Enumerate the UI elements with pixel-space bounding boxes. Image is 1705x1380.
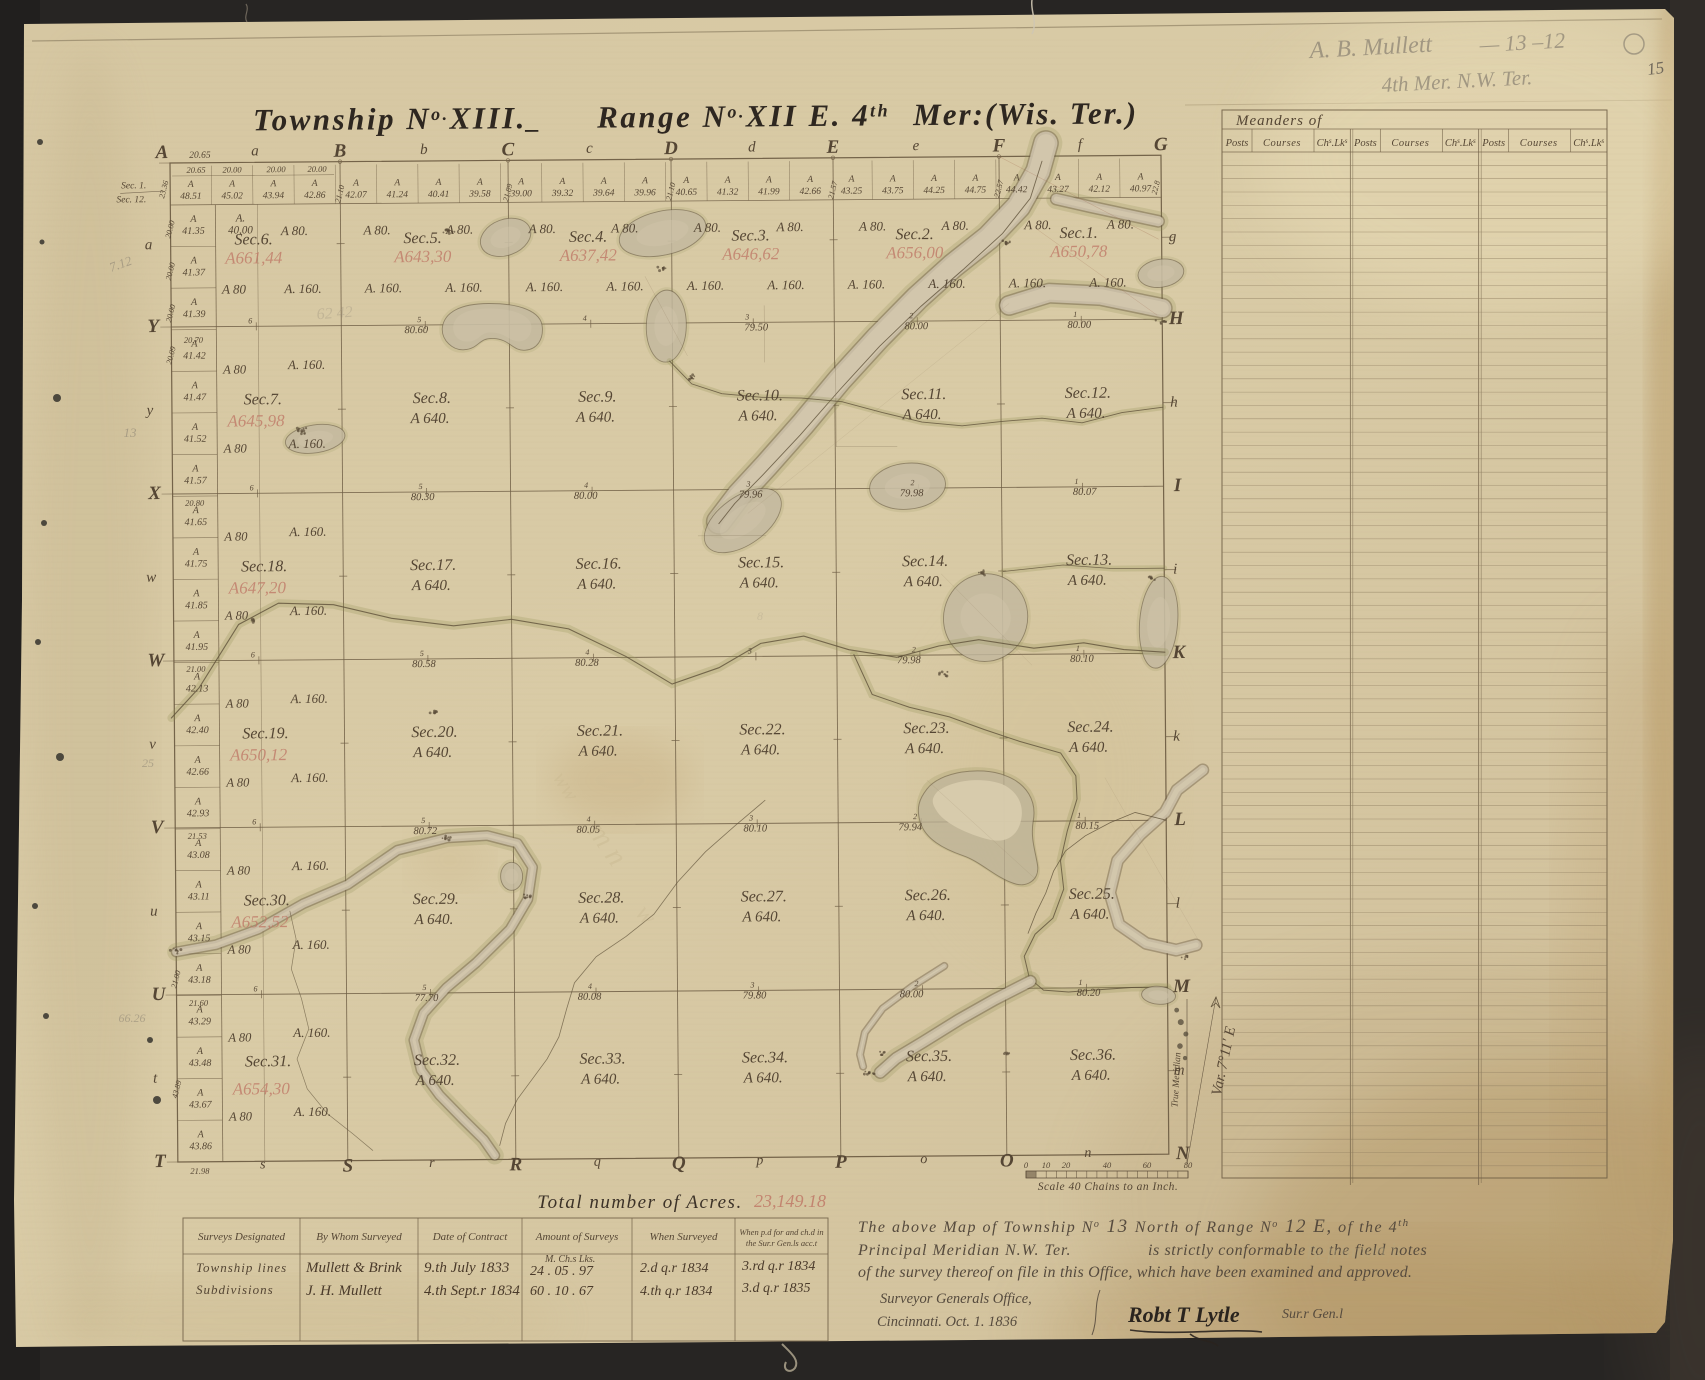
svg-text:41.65: 41.65 xyxy=(185,517,208,528)
svg-text:A650,78: A650,78 xyxy=(1049,242,1108,261)
svg-text:a: a xyxy=(251,143,259,159)
svg-text:Sec.19.: Sec.19. xyxy=(242,725,288,742)
svg-text:A: A xyxy=(196,1088,204,1099)
svg-text:43.75: 43.75 xyxy=(882,186,904,196)
svg-text:A: A xyxy=(641,176,648,186)
svg-text:M: M xyxy=(1172,976,1191,997)
svg-text:A 640.: A 640. xyxy=(907,1069,947,1085)
svg-text:43.18: 43.18 xyxy=(188,975,211,986)
svg-text:When Surveyed: When Surveyed xyxy=(649,1231,718,1243)
svg-text:Sec.20.: Sec.20. xyxy=(411,724,457,741)
svg-text:40.41: 40.41 xyxy=(428,190,449,200)
svg-text:k: k xyxy=(1173,729,1180,745)
svg-text:A: A xyxy=(682,176,689,186)
svg-text:A 640.: A 640. xyxy=(1071,1068,1111,1084)
svg-text:Robt T Lytle: Robt T Lytle xyxy=(1127,1302,1240,1327)
svg-text:41.42: 41.42 xyxy=(183,351,206,362)
svg-text:Chs.Lks: Chs.Lks xyxy=(1445,137,1476,149)
svg-text:Sec.7.: Sec.7. xyxy=(244,391,282,408)
svg-text:39.96: 39.96 xyxy=(633,188,656,198)
svg-text:Mer:(Wis. Ter.): Mer:(Wis. Ter.) xyxy=(912,95,1138,132)
svg-text:c: c xyxy=(586,141,593,157)
svg-text:h: h xyxy=(1170,395,1178,411)
svg-text:41.57: 41.57 xyxy=(184,475,208,486)
svg-text:A 640.: A 640. xyxy=(1069,907,1109,923)
svg-text:2: 2 xyxy=(912,645,916,654)
svg-text:79.98: 79.98 xyxy=(897,655,921,666)
svg-text:A. 160.: A. 160. xyxy=(291,937,329,952)
svg-text:y: y xyxy=(145,403,154,419)
svg-text:79.80: 79.80 xyxy=(743,990,767,1001)
svg-text:4.th q.r 1834: 4.th q.r 1834 xyxy=(640,1284,712,1299)
svg-text:80.58: 80.58 xyxy=(412,659,436,670)
svg-text:5: 5 xyxy=(422,983,426,992)
svg-text:20.65: 20.65 xyxy=(189,151,211,161)
svg-text:A: A xyxy=(197,1129,205,1140)
svg-text:6: 6 xyxy=(251,650,255,659)
svg-text:21.60: 21.60 xyxy=(189,998,209,1008)
svg-text:80.00: 80.00 xyxy=(900,989,924,1000)
svg-text:43.48: 43.48 xyxy=(189,1058,212,1069)
svg-text:E: E xyxy=(825,137,839,158)
svg-text:A. 160.: A. 160. xyxy=(927,276,965,291)
svg-text:A 640.: A 640. xyxy=(412,745,452,761)
svg-text:Surveyor Generals Office,: Surveyor Generals Office, xyxy=(880,1291,1032,1307)
svg-text:A 80.: A 80. xyxy=(1106,216,1134,231)
svg-text:A: A xyxy=(154,142,168,163)
svg-text:Sec.22.: Sec.22. xyxy=(739,721,785,738)
svg-text:J. H. Mullett: J. H. Mullett xyxy=(306,1283,383,1299)
svg-text:3: 3 xyxy=(744,312,749,321)
svg-text:a: a xyxy=(145,237,153,253)
svg-text:A: A xyxy=(191,422,199,433)
svg-text:A: A xyxy=(1054,173,1061,183)
svg-text:A652,52: A652,52 xyxy=(230,912,289,931)
svg-text:A646,62: A646,62 xyxy=(721,244,780,263)
svg-text:48.51: 48.51 xyxy=(180,192,201,202)
svg-text:Sec.25.: Sec.25. xyxy=(1069,886,1115,903)
svg-text:1: 1 xyxy=(1076,644,1080,653)
svg-text:A 80: A 80 xyxy=(225,696,250,710)
svg-text:A. 160.: A. 160. xyxy=(290,770,328,785)
svg-text:80.30: 80.30 xyxy=(411,492,435,503)
svg-text:Township No.XIII._: Township No.XIII._ xyxy=(253,100,542,137)
svg-text:S: S xyxy=(343,1156,354,1177)
svg-text:41.32: 41.32 xyxy=(717,188,739,198)
svg-text:A: A xyxy=(195,921,203,932)
svg-text:42.12: 42.12 xyxy=(1089,185,1111,195)
svg-text:20.80: 20.80 xyxy=(185,498,205,508)
svg-text:u: u xyxy=(150,904,158,920)
svg-text:41.47: 41.47 xyxy=(184,392,208,403)
svg-text:42.40: 42.40 xyxy=(186,725,209,736)
svg-text:Sec.35.: Sec.35. xyxy=(906,1048,952,1065)
svg-text:62 42: 62 42 xyxy=(316,304,353,323)
svg-text:20.70: 20.70 xyxy=(184,335,204,345)
svg-text:A: A xyxy=(765,175,772,185)
svg-text:79.94: 79.94 xyxy=(898,822,922,833)
svg-text:1: 1 xyxy=(1077,811,1081,820)
svg-text:2: 2 xyxy=(909,311,913,320)
svg-text:3: 3 xyxy=(748,813,753,822)
svg-text:1: 1 xyxy=(1074,477,1078,486)
svg-text:Sec.8.: Sec.8. xyxy=(413,390,451,407)
svg-text:80: 80 xyxy=(1184,1160,1193,1170)
svg-text:H: H xyxy=(1168,308,1185,329)
svg-text:3.rd q.r 1834: 3.rd q.r 1834 xyxy=(741,1259,815,1274)
svg-text:Courses: Courses xyxy=(1263,138,1301,149)
svg-text:Sec. 12.: Sec. 12. xyxy=(116,195,146,205)
svg-text:A 640.: A 640. xyxy=(905,908,945,924)
svg-text:Sec.31.: Sec.31. xyxy=(245,1053,291,1070)
svg-text:Sec.18.: Sec.18. xyxy=(241,558,287,575)
svg-text:80.07: 80.07 xyxy=(1073,487,1097,498)
svg-text:A 640.: A 640. xyxy=(576,577,616,593)
svg-text:A 640.: A 640. xyxy=(1068,740,1108,756)
svg-text:A 640.: A 640. xyxy=(904,741,944,757)
svg-text:40.65: 40.65 xyxy=(676,188,698,198)
svg-text:23,149.18: 23,149.18 xyxy=(754,1191,826,1211)
svg-text:25: 25 xyxy=(142,756,154,770)
svg-text:A. 160.: A. 160. xyxy=(283,281,321,296)
svg-text:e: e xyxy=(912,138,919,154)
svg-text:C: C xyxy=(501,139,514,160)
svg-text:Scale 40 Chains to an Inch.: Scale 40 Chains to an Inch. xyxy=(1038,1181,1179,1193)
svg-text:6: 6 xyxy=(248,316,252,325)
svg-text:1: 1 xyxy=(1073,310,1077,319)
svg-text:A. 160.: A. 160. xyxy=(290,691,328,706)
svg-text:42.93: 42.93 xyxy=(187,808,210,819)
svg-text:3.d q.r 1835: 3.d q.r 1835 xyxy=(741,1281,810,1296)
svg-text:The above Map of Township No 1: The above Map of Township No 13 North of… xyxy=(858,1216,1410,1237)
svg-text:A 640.: A 640. xyxy=(743,1070,783,1086)
svg-text:n: n xyxy=(1084,1146,1091,1161)
svg-text:A. 160.: A. 160. xyxy=(1088,274,1126,289)
svg-text:A 640.: A 640. xyxy=(740,742,780,758)
svg-text:1: 1 xyxy=(1078,978,1082,987)
svg-text:20.00: 20.00 xyxy=(307,164,327,174)
svg-text:A 80: A 80 xyxy=(227,1030,252,1044)
svg-text:A. 160.: A. 160. xyxy=(766,277,804,292)
svg-text:39.64: 39.64 xyxy=(592,189,615,199)
svg-text:A. 160.: A. 160. xyxy=(525,279,563,294)
svg-text:Chs.Lks: Chs.Lks xyxy=(1573,137,1604,149)
svg-text:66.26: 66.26 xyxy=(119,1011,146,1025)
svg-text:A650,12: A650,12 xyxy=(229,745,288,764)
svg-text:Sec.28.: Sec.28. xyxy=(578,889,624,906)
svg-text:A: A xyxy=(393,178,400,188)
svg-text:4.th Sept.r 1834: 4.th Sept.r 1834 xyxy=(424,1283,520,1299)
svg-text:w: w xyxy=(146,570,156,586)
svg-text:Sec.26.: Sec.26. xyxy=(905,887,951,904)
svg-text:Sec.24.: Sec.24. xyxy=(1067,719,1113,736)
svg-text:79.96: 79.96 xyxy=(739,489,763,500)
svg-text:A 80: A 80 xyxy=(227,942,252,956)
svg-text:By Whom Surveyed: By Whom Surveyed xyxy=(316,1231,402,1243)
svg-text:A: A xyxy=(476,178,483,188)
svg-text:Sec.16.: Sec.16. xyxy=(575,555,621,572)
svg-text:L: L xyxy=(1173,809,1186,830)
svg-text:A: A xyxy=(558,177,565,187)
svg-text:Sec.27.: Sec.27. xyxy=(741,888,787,905)
svg-text:X: X xyxy=(147,483,162,504)
svg-text:41.37: 41.37 xyxy=(183,267,207,278)
svg-text:Sec. 1.: Sec. 1. xyxy=(121,181,146,191)
svg-text:A 80: A 80 xyxy=(226,863,251,877)
svg-text:Sec.14.: Sec.14. xyxy=(902,553,948,570)
svg-text:A: A xyxy=(352,179,359,189)
svg-text:41.35: 41.35 xyxy=(182,226,205,237)
svg-text:24 . 05 . 97: 24 . 05 . 97 xyxy=(530,1264,594,1279)
svg-text:A 640.: A 640. xyxy=(413,912,453,928)
svg-text:10: 10 xyxy=(1042,1160,1051,1170)
svg-text:21.53: 21.53 xyxy=(188,831,207,841)
svg-text:Sec.6.: Sec.6. xyxy=(234,231,272,248)
svg-text:A. 160.: A. 160. xyxy=(444,280,482,295)
svg-text:U: U xyxy=(152,984,167,1005)
svg-text:80.60: 80.60 xyxy=(404,325,428,336)
svg-text:44.25: 44.25 xyxy=(923,186,945,196)
svg-text:41.24: 41.24 xyxy=(387,190,409,200)
svg-text:A: A xyxy=(435,178,442,188)
svg-text:41.99: 41.99 xyxy=(758,187,780,197)
svg-text:Sec.1.: Sec.1. xyxy=(1059,225,1097,242)
svg-text:of the survey thereof on file: of the survey thereof on file in this Of… xyxy=(858,1264,1412,1281)
svg-text:A 80.: A 80. xyxy=(693,220,721,235)
svg-text:A656,00: A656,00 xyxy=(885,243,944,262)
svg-text:A: A xyxy=(191,380,199,391)
svg-text:A. 160.: A. 160. xyxy=(289,603,327,618)
svg-text:42.86: 42.86 xyxy=(304,191,326,201)
svg-text:5: 5 xyxy=(420,649,424,658)
svg-text:80.10: 80.10 xyxy=(1070,654,1094,665)
svg-text:A: A xyxy=(930,174,937,184)
svg-text:43.11: 43.11 xyxy=(188,891,210,902)
svg-text:6: 6 xyxy=(253,984,257,993)
svg-text:Sec.15.: Sec.15. xyxy=(738,554,784,571)
svg-text:A643,30: A643,30 xyxy=(393,247,452,266)
svg-text:43.86: 43.86 xyxy=(189,1141,212,1152)
svg-text:Surveys Designated: Surveys Designated xyxy=(198,1231,286,1243)
svg-text:A 80: A 80 xyxy=(223,529,248,543)
svg-text:A 80.: A 80. xyxy=(280,223,308,238)
svg-text:40: 40 xyxy=(1103,1160,1112,1170)
svg-text:5: 5 xyxy=(419,482,423,491)
svg-text:39.58: 39.58 xyxy=(468,189,491,199)
svg-text:A: A xyxy=(193,630,201,641)
svg-text:F: F xyxy=(991,135,1005,156)
svg-text:A 640.: A 640. xyxy=(415,1073,455,1089)
svg-text:A: A xyxy=(196,1046,204,1057)
svg-text:A 640.: A 640. xyxy=(575,410,615,426)
svg-text:Sec.10.: Sec.10. xyxy=(737,387,783,404)
svg-text:6: 6 xyxy=(250,483,254,492)
svg-text:43.27: 43.27 xyxy=(1047,185,1070,195)
svg-text:A 640.: A 640. xyxy=(578,744,618,760)
svg-text:G: G xyxy=(1154,134,1168,155)
svg-text:A: A xyxy=(195,963,203,974)
svg-text:Mullett & Brink: Mullett & Brink xyxy=(305,1260,402,1276)
svg-text:42.13: 42.13 xyxy=(186,683,209,694)
svg-text:A 80.: A 80. xyxy=(941,218,969,233)
svg-text:A 80: A 80 xyxy=(221,281,247,296)
svg-text:b: b xyxy=(420,142,428,158)
svg-text:Meanders of: Meanders of xyxy=(1235,113,1323,129)
svg-text:A: A xyxy=(190,297,198,308)
svg-text:Subdivisions: Subdivisions xyxy=(196,1282,274,1297)
svg-text:80.08: 80.08 xyxy=(578,992,602,1003)
svg-text:Sec.12.: Sec.12. xyxy=(1065,385,1111,402)
svg-text:v: v xyxy=(149,737,156,753)
svg-text:When p.d for and ch.d in: When p.d for and ch.d in xyxy=(739,1227,823,1237)
svg-text:A. 160.: A. 160. xyxy=(288,524,326,539)
svg-text:A 80: A 80 xyxy=(225,775,250,789)
svg-text:60: 60 xyxy=(1143,1160,1152,1170)
svg-text:I: I xyxy=(1173,475,1182,496)
svg-text:A: A xyxy=(517,177,524,187)
svg-text:43.94: 43.94 xyxy=(263,191,285,201)
svg-text:Sec.33.: Sec.33. xyxy=(579,1050,625,1067)
svg-text:Cincinnati. Oct. 1. 1836: Cincinnati. Oct. 1. 1836 xyxy=(877,1314,1018,1330)
svg-text:A 640.: A 640. xyxy=(741,909,781,925)
svg-text:3: 3 xyxy=(749,980,754,989)
svg-text:Principal Meridian N.W. Ter.: Principal Meridian N.W. Ter. xyxy=(857,1242,1072,1259)
svg-text:2: 2 xyxy=(910,478,914,487)
svg-text:Sec.4.: Sec.4. xyxy=(569,229,607,246)
svg-text:Chs.Lks: Chs.Lks xyxy=(1317,137,1348,149)
svg-text:A: A xyxy=(195,880,203,891)
svg-text:Sec.5.: Sec.5. xyxy=(403,230,441,247)
svg-text:41.95: 41.95 xyxy=(186,642,209,653)
svg-text:Sec.34.: Sec.34. xyxy=(742,1049,788,1066)
svg-text:80.20: 80.20 xyxy=(1077,988,1101,999)
svg-text:A. 160.: A. 160. xyxy=(686,278,724,293)
svg-text:79.98: 79.98 xyxy=(900,488,924,499)
svg-text:20: 20 xyxy=(1062,1160,1071,1170)
svg-text:5: 5 xyxy=(417,315,421,324)
svg-text:Courses: Courses xyxy=(1391,138,1429,149)
svg-text:60 . 10 . 67: 60 . 10 . 67 xyxy=(530,1284,594,1299)
svg-text:6: 6 xyxy=(252,817,256,826)
svg-text:15: 15 xyxy=(1646,58,1665,79)
svg-text:R: R xyxy=(508,1154,522,1175)
svg-text:A: A xyxy=(194,755,202,766)
svg-text:A661,44: A661,44 xyxy=(224,248,283,267)
svg-text:4: 4 xyxy=(584,481,588,490)
svg-text:Sur.r Gen.l: Sur.r Gen.l xyxy=(1282,1307,1343,1322)
svg-text:Sec.11.: Sec.11. xyxy=(901,386,946,403)
svg-text:A 80: A 80 xyxy=(228,1109,253,1123)
svg-text:W: W xyxy=(147,650,165,671)
svg-text:A. 160.: A. 160. xyxy=(291,858,329,873)
svg-text:41.39: 41.39 xyxy=(183,309,206,320)
svg-text:A.: A. xyxy=(235,212,246,224)
svg-text:o: o xyxy=(920,1152,927,1167)
svg-text:p: p xyxy=(755,1153,763,1168)
svg-text:A 640.: A 640. xyxy=(1065,406,1105,422)
svg-text:42.66: 42.66 xyxy=(800,187,822,197)
svg-text:A 640.: A 640. xyxy=(580,1071,620,1087)
svg-text:Sec.23.: Sec.23. xyxy=(903,720,949,737)
svg-text:A: A xyxy=(228,179,235,189)
svg-text:80.00: 80.00 xyxy=(1067,320,1091,331)
svg-text:A. 160.: A. 160. xyxy=(293,1104,331,1119)
svg-text:80.00: 80.00 xyxy=(574,491,598,502)
svg-text:Sec.9.: Sec.9. xyxy=(578,389,616,406)
svg-text:A. 160.: A. 160. xyxy=(1008,275,1046,290)
svg-text:Courses: Courses xyxy=(1520,138,1558,149)
svg-text:D: D xyxy=(663,138,678,159)
svg-text:A: A xyxy=(311,179,318,189)
svg-text:Sec.3.: Sec.3. xyxy=(731,227,769,244)
svg-text:d: d xyxy=(748,139,756,155)
svg-text:Sec.30.: Sec.30. xyxy=(244,892,290,909)
svg-text:A: A xyxy=(192,547,200,558)
svg-text:41.75: 41.75 xyxy=(185,559,208,570)
svg-text:L Befrinnan it: L Befrinnan it xyxy=(1288,1239,1402,1265)
svg-text:A 80.: A 80. xyxy=(775,219,803,234)
svg-text:A 640.: A 640. xyxy=(901,407,941,423)
svg-text:Posts: Posts xyxy=(1481,138,1505,149)
svg-text:9.th July 1833: 9.th July 1833 xyxy=(424,1260,509,1276)
svg-text:A 640.: A 640. xyxy=(737,408,777,424)
svg-text:4: 4 xyxy=(585,648,589,657)
svg-text:80.28: 80.28 xyxy=(575,658,599,669)
svg-text:A647,20: A647,20 xyxy=(228,578,287,597)
svg-text:8: 8 xyxy=(757,609,763,623)
svg-text:A 640.: A 640. xyxy=(411,578,451,594)
svg-text:Total number of Acres.: Total number of Acres. xyxy=(537,1192,742,1213)
svg-text:Posts: Posts xyxy=(1225,138,1249,149)
svg-text:Posts: Posts xyxy=(1353,138,1377,149)
svg-text:s: s xyxy=(260,1157,266,1172)
svg-text:A: A xyxy=(192,588,200,599)
svg-text:3: 3 xyxy=(746,479,751,488)
svg-text:A: A xyxy=(1095,173,1102,183)
svg-text:A: A xyxy=(1013,173,1020,183)
svg-text:42.66: 42.66 xyxy=(186,767,209,778)
svg-text:4: 4 xyxy=(588,982,592,991)
svg-text:A: A xyxy=(190,255,198,266)
svg-text:A 80.: A 80. xyxy=(445,222,473,237)
svg-text:A: A xyxy=(889,174,896,184)
svg-text:80.15: 80.15 xyxy=(1075,821,1099,832)
svg-text:41.52: 41.52 xyxy=(184,434,207,445)
svg-text:A 80.: A 80. xyxy=(362,222,390,237)
svg-text:A654,30: A654,30 xyxy=(232,1079,291,1098)
svg-text:q: q xyxy=(594,1155,601,1170)
svg-text:80.00: 80.00 xyxy=(904,321,928,332)
svg-text:20.00: 20.00 xyxy=(266,164,286,174)
svg-text:13: 13 xyxy=(124,425,138,440)
svg-text:Sec.29.: Sec.29. xyxy=(413,891,459,908)
svg-text:A 640.: A 640. xyxy=(903,574,943,590)
svg-text:42.07: 42.07 xyxy=(345,190,368,200)
svg-text:A: A xyxy=(269,179,276,189)
svg-text:4: 4 xyxy=(583,314,587,323)
svg-text:20.00: 20.00 xyxy=(222,164,242,174)
svg-text:A 80.: A 80. xyxy=(1023,217,1051,232)
svg-text:43.15: 43.15 xyxy=(188,933,211,944)
svg-text:43.25: 43.25 xyxy=(841,187,863,197)
svg-text:A. 160.: A. 160. xyxy=(847,276,885,291)
svg-text:A 80: A 80 xyxy=(222,362,247,376)
svg-text:A 640.: A 640. xyxy=(410,411,450,427)
svg-text:A: A xyxy=(187,180,194,190)
svg-text:A. 160.: A. 160. xyxy=(287,357,325,372)
svg-text:A 80: A 80 xyxy=(223,441,248,455)
svg-text:41.85: 41.85 xyxy=(185,600,208,611)
